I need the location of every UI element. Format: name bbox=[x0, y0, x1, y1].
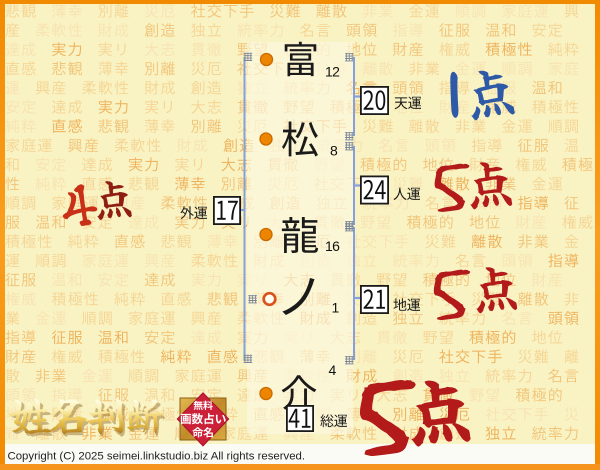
svg-text:16: 16 bbox=[325, 238, 340, 254]
svg-text:12: 12 bbox=[325, 63, 340, 79]
svg-text:4: 4 bbox=[329, 362, 337, 378]
svg-text:1: 1 bbox=[332, 299, 340, 315]
svg-text:8: 8 bbox=[330, 143, 338, 159]
svg-text:Copyright (C) 2025 seimei.link: Copyright (C) 2025 seimei.linkstudio.biz… bbox=[8, 451, 306, 463]
